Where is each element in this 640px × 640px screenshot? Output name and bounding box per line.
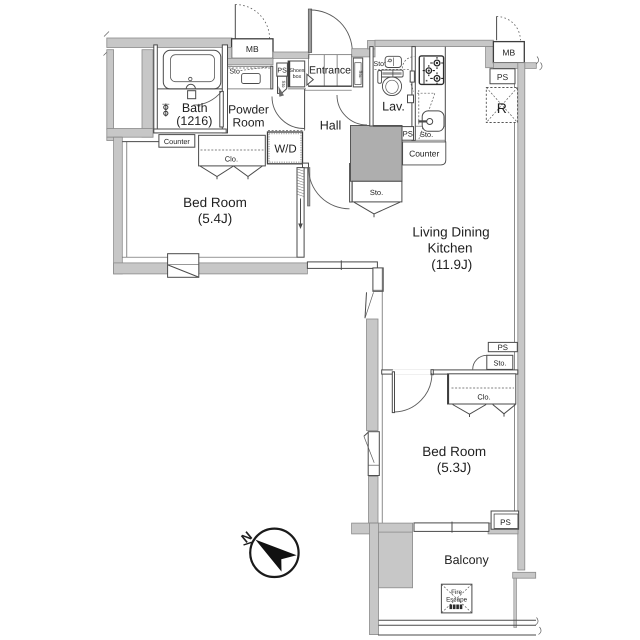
svg-text:Sto.: Sto.: [420, 130, 433, 139]
svg-text:Lav.: Lav.: [382, 100, 405, 114]
svg-text:PS: PS: [403, 130, 413, 139]
svg-text:PS: PS: [497, 72, 509, 82]
svg-text:Hall: Hall: [320, 119, 342, 133]
svg-text:Clo.: Clo.: [477, 393, 490, 402]
svg-text:Shoes: Shoes: [289, 68, 305, 74]
svg-text:PS: PS: [277, 68, 287, 75]
svg-text:Entrance: Entrance: [309, 64, 351, 76]
svg-text:Sto.: Sto.: [370, 188, 383, 197]
svg-text:Kitchen: Kitchen: [427, 241, 472, 256]
svg-text:R: R: [497, 100, 507, 116]
svg-text:Living Dining: Living Dining: [412, 225, 489, 240]
svg-text:Bed Room: Bed Room: [183, 195, 247, 210]
svg-text:Sto: Sto: [281, 81, 286, 88]
svg-text:Fire: Fire: [451, 589, 462, 596]
svg-text:Counter: Counter: [164, 137, 191, 146]
svg-text:(1216): (1216): [176, 114, 212, 128]
svg-text:PS: PS: [498, 343, 508, 352]
svg-text:Counter: Counter: [409, 149, 439, 159]
svg-text:box: box: [293, 74, 302, 80]
svg-text:(11.9J): (11.9J): [431, 257, 472, 272]
svg-text:MB: MB: [502, 47, 515, 57]
svg-text:Sto: Sto: [374, 61, 385, 68]
svg-text:W/D: W/D: [274, 144, 296, 156]
svg-text:Sto: Sto: [229, 68, 240, 75]
svg-text:(5.4J): (5.4J): [198, 211, 233, 226]
svg-text:MB: MB: [246, 44, 259, 54]
svg-text:Bed Room: Bed Room: [422, 444, 486, 459]
svg-text:Sto.: Sto.: [494, 359, 507, 368]
svg-text:PS: PS: [500, 518, 511, 527]
svg-text:Escape: Escape: [446, 597, 468, 604]
svg-text:(5.3J): (5.3J): [437, 460, 472, 475]
svg-text:Clo.: Clo.: [225, 154, 238, 163]
svg-text:Room: Room: [232, 115, 264, 129]
svg-text:Balcony: Balcony: [444, 553, 489, 567]
svg-text:Sto.: Sto.: [358, 70, 363, 78]
